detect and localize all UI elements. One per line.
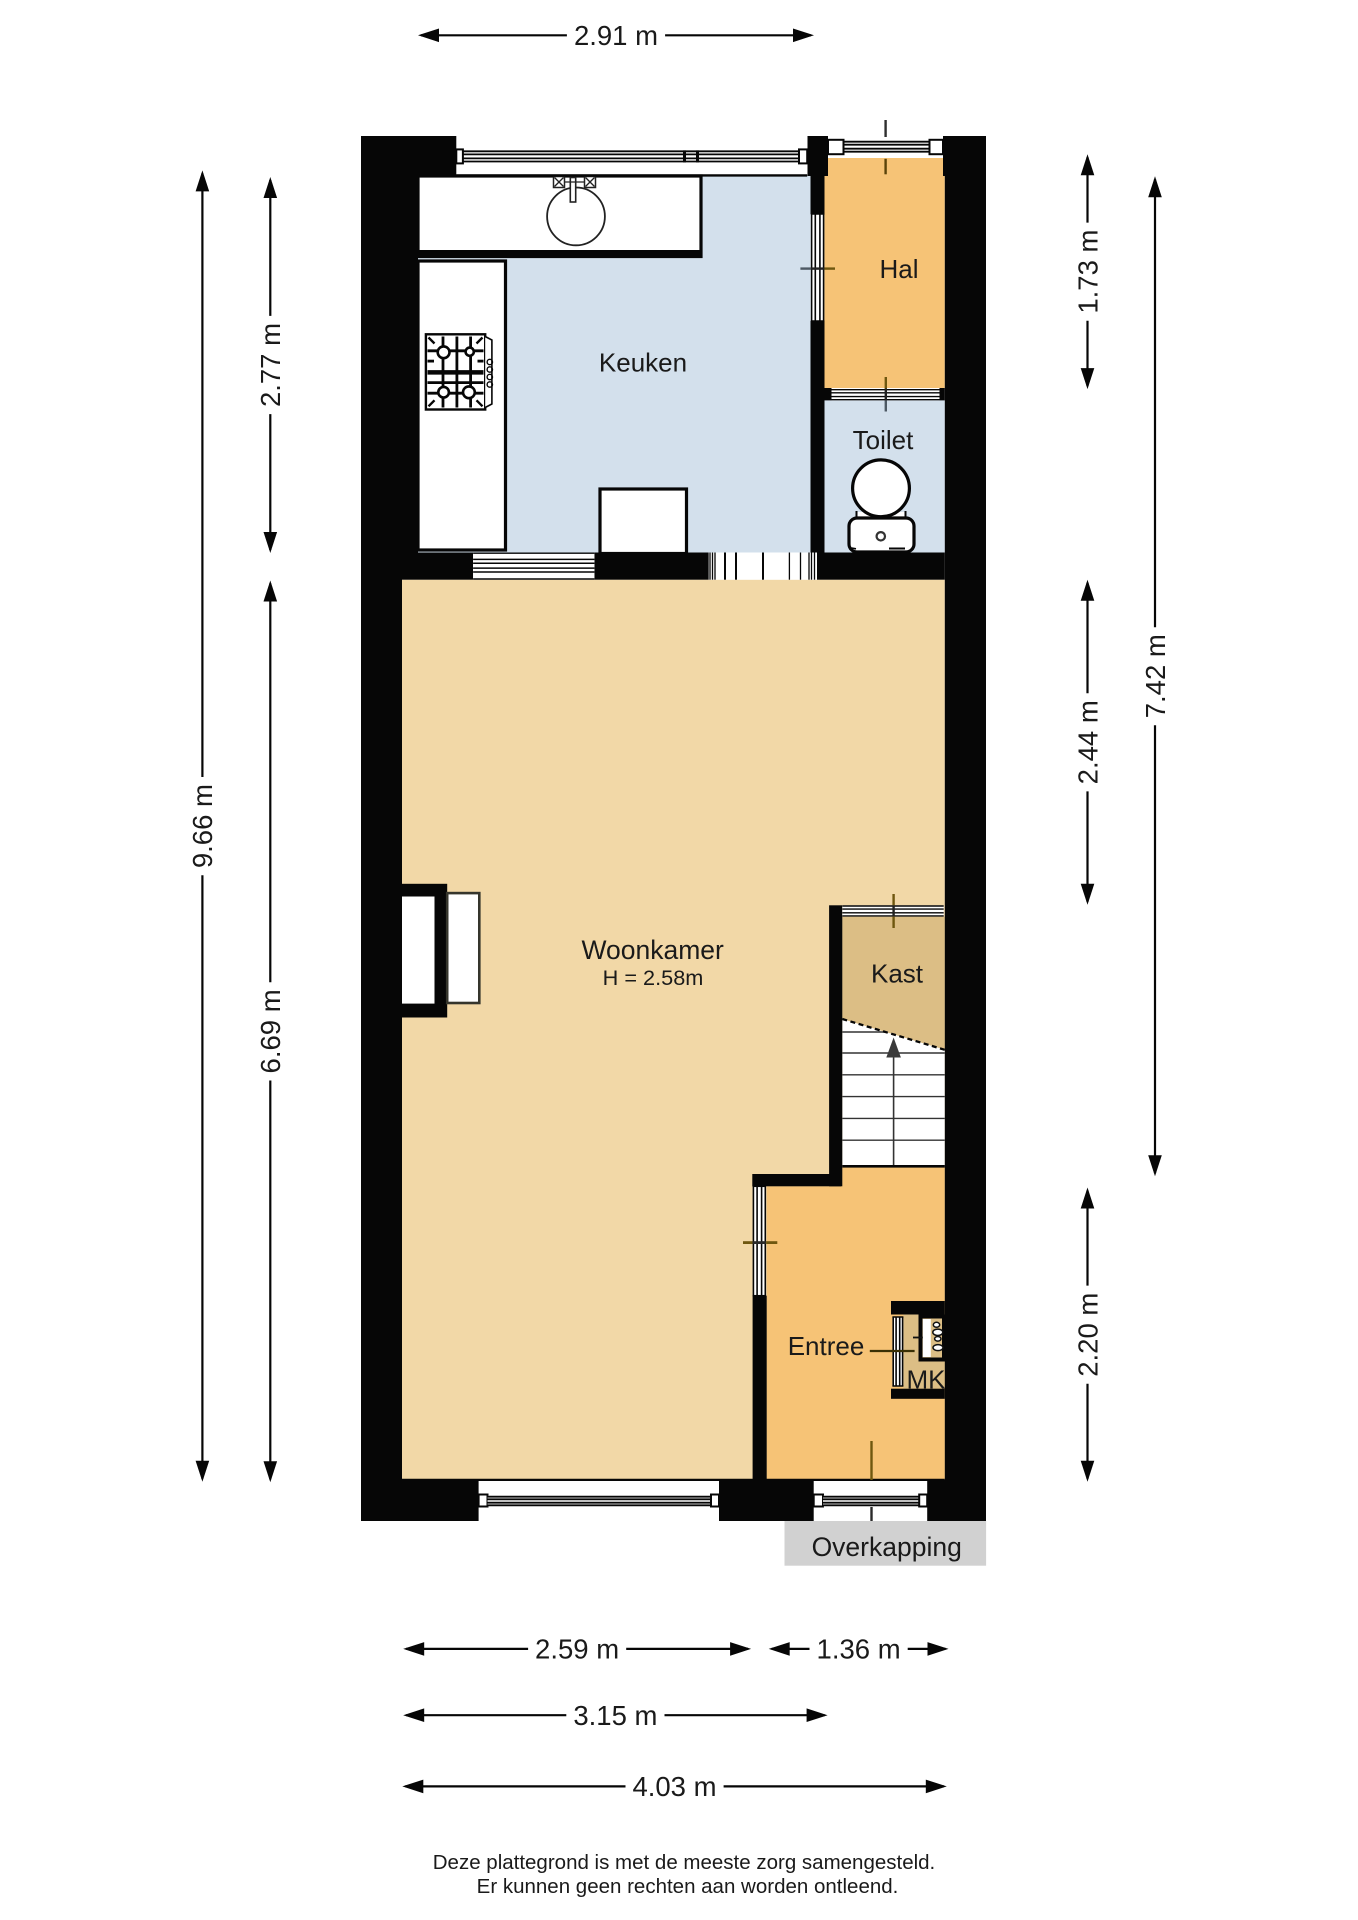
svg-text:9.66 m: 9.66 m — [187, 784, 218, 868]
svg-text:2.91 m: 2.91 m — [574, 20, 658, 51]
svg-text:MK: MK — [907, 1365, 947, 1395]
svg-text:Er kunnen geen rechten aan wor: Er kunnen geen rechten aan worden ontlee… — [477, 1875, 899, 1898]
svg-text:Deze plattegrond is met de mee: Deze plattegrond is met de meeste zorg s… — [433, 1851, 936, 1874]
svg-text:Keuken: Keuken — [599, 348, 687, 378]
svg-text:Hal: Hal — [879, 254, 918, 284]
svg-text:H = 2.58m: H = 2.58m — [603, 965, 704, 990]
svg-text:2.44 m: 2.44 m — [1072, 700, 1103, 784]
svg-text:Entree: Entree — [788, 1331, 865, 1361]
svg-text:1.36 m: 1.36 m — [817, 1634, 901, 1665]
svg-text:7.42 m: 7.42 m — [1140, 634, 1171, 718]
svg-text:Toilet: Toilet — [853, 425, 914, 455]
svg-text:Overkapping: Overkapping — [812, 1532, 962, 1562]
svg-text:1.73 m: 1.73 m — [1072, 230, 1103, 314]
svg-text:Woonkamer: Woonkamer — [582, 935, 725, 965]
svg-text:2.59 m: 2.59 m — [535, 1634, 619, 1665]
svg-text:2.20 m: 2.20 m — [1072, 1293, 1103, 1377]
svg-text:4.03 m: 4.03 m — [632, 1771, 716, 1802]
svg-text:Kast: Kast — [871, 959, 924, 989]
svg-text:2.77 m: 2.77 m — [255, 323, 286, 407]
svg-text:6.69 m: 6.69 m — [255, 989, 286, 1073]
svg-text:3.15 m: 3.15 m — [573, 1700, 657, 1731]
